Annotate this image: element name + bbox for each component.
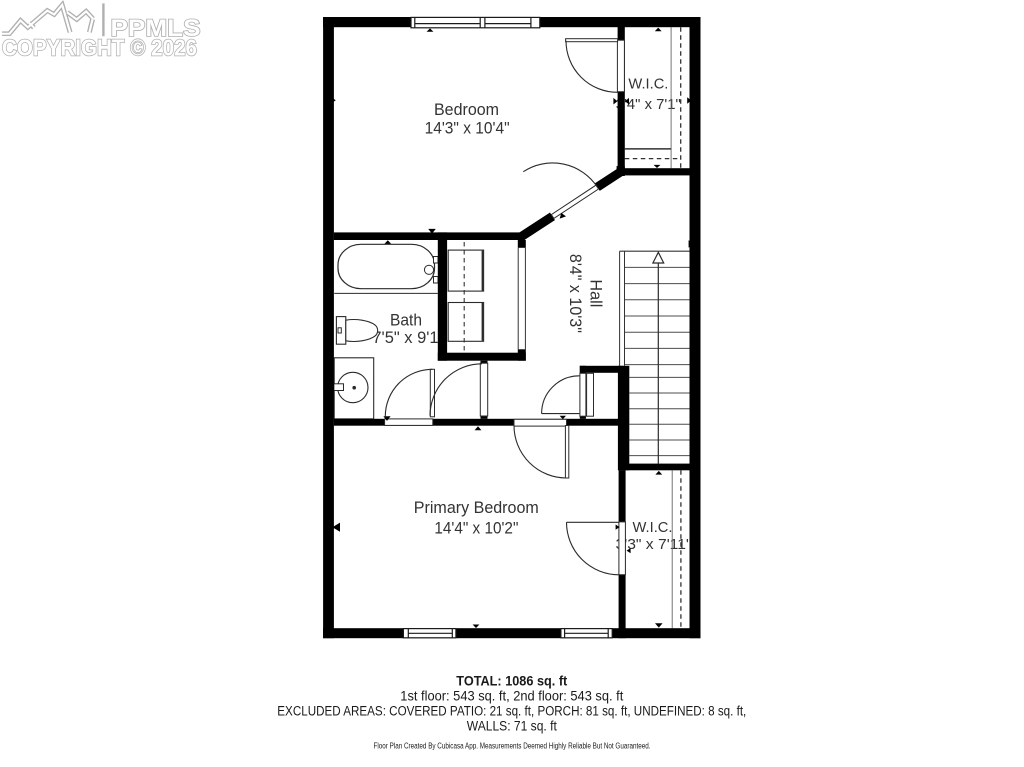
svg-text:7'5" x 9'1": 7'5" x 9'1" — [372, 328, 444, 347]
svg-text:Primary Bedroom: Primary Bedroom — [414, 498, 539, 517]
svg-text:8'4" x 10'3": 8'4" x 10'3" — [566, 254, 585, 333]
svg-text:TOTAL: 1086 sq. ft: TOTAL: 1086 sq. ft — [456, 673, 567, 688]
svg-text:EXCLUDED AREAS: COVERED PATIO:: EXCLUDED AREAS: COVERED PATIO: 21 sq. ft… — [277, 703, 746, 718]
svg-text:Hall: Hall — [586, 279, 605, 307]
svg-text:1st floor: 543 sq. ft, 2nd flo: 1st floor: 543 sq. ft, 2nd floor: 543 sq… — [400, 688, 623, 703]
svg-text:14'4" x 10'2": 14'4" x 10'2" — [434, 519, 518, 538]
svg-text:Bath: Bath — [390, 311, 422, 330]
svg-text:WALLS: 71 sq. ft: WALLS: 71 sq. ft — [467, 718, 557, 733]
svg-text:COPYRIGHT © 2026: COPYRIGHT © 2026 — [2, 34, 197, 60]
svg-text:14'3" x 10'4": 14'3" x 10'4" — [425, 119, 510, 138]
svg-text:W.I.C.: W.I.C. — [633, 519, 673, 536]
svg-text:W.I.C.: W.I.C. — [628, 76, 668, 93]
svg-text:Bedroom: Bedroom — [434, 100, 499, 119]
svg-text:Floor Plan Created By Cubicasa: Floor Plan Created By Cubicasa App. Meas… — [374, 741, 651, 750]
